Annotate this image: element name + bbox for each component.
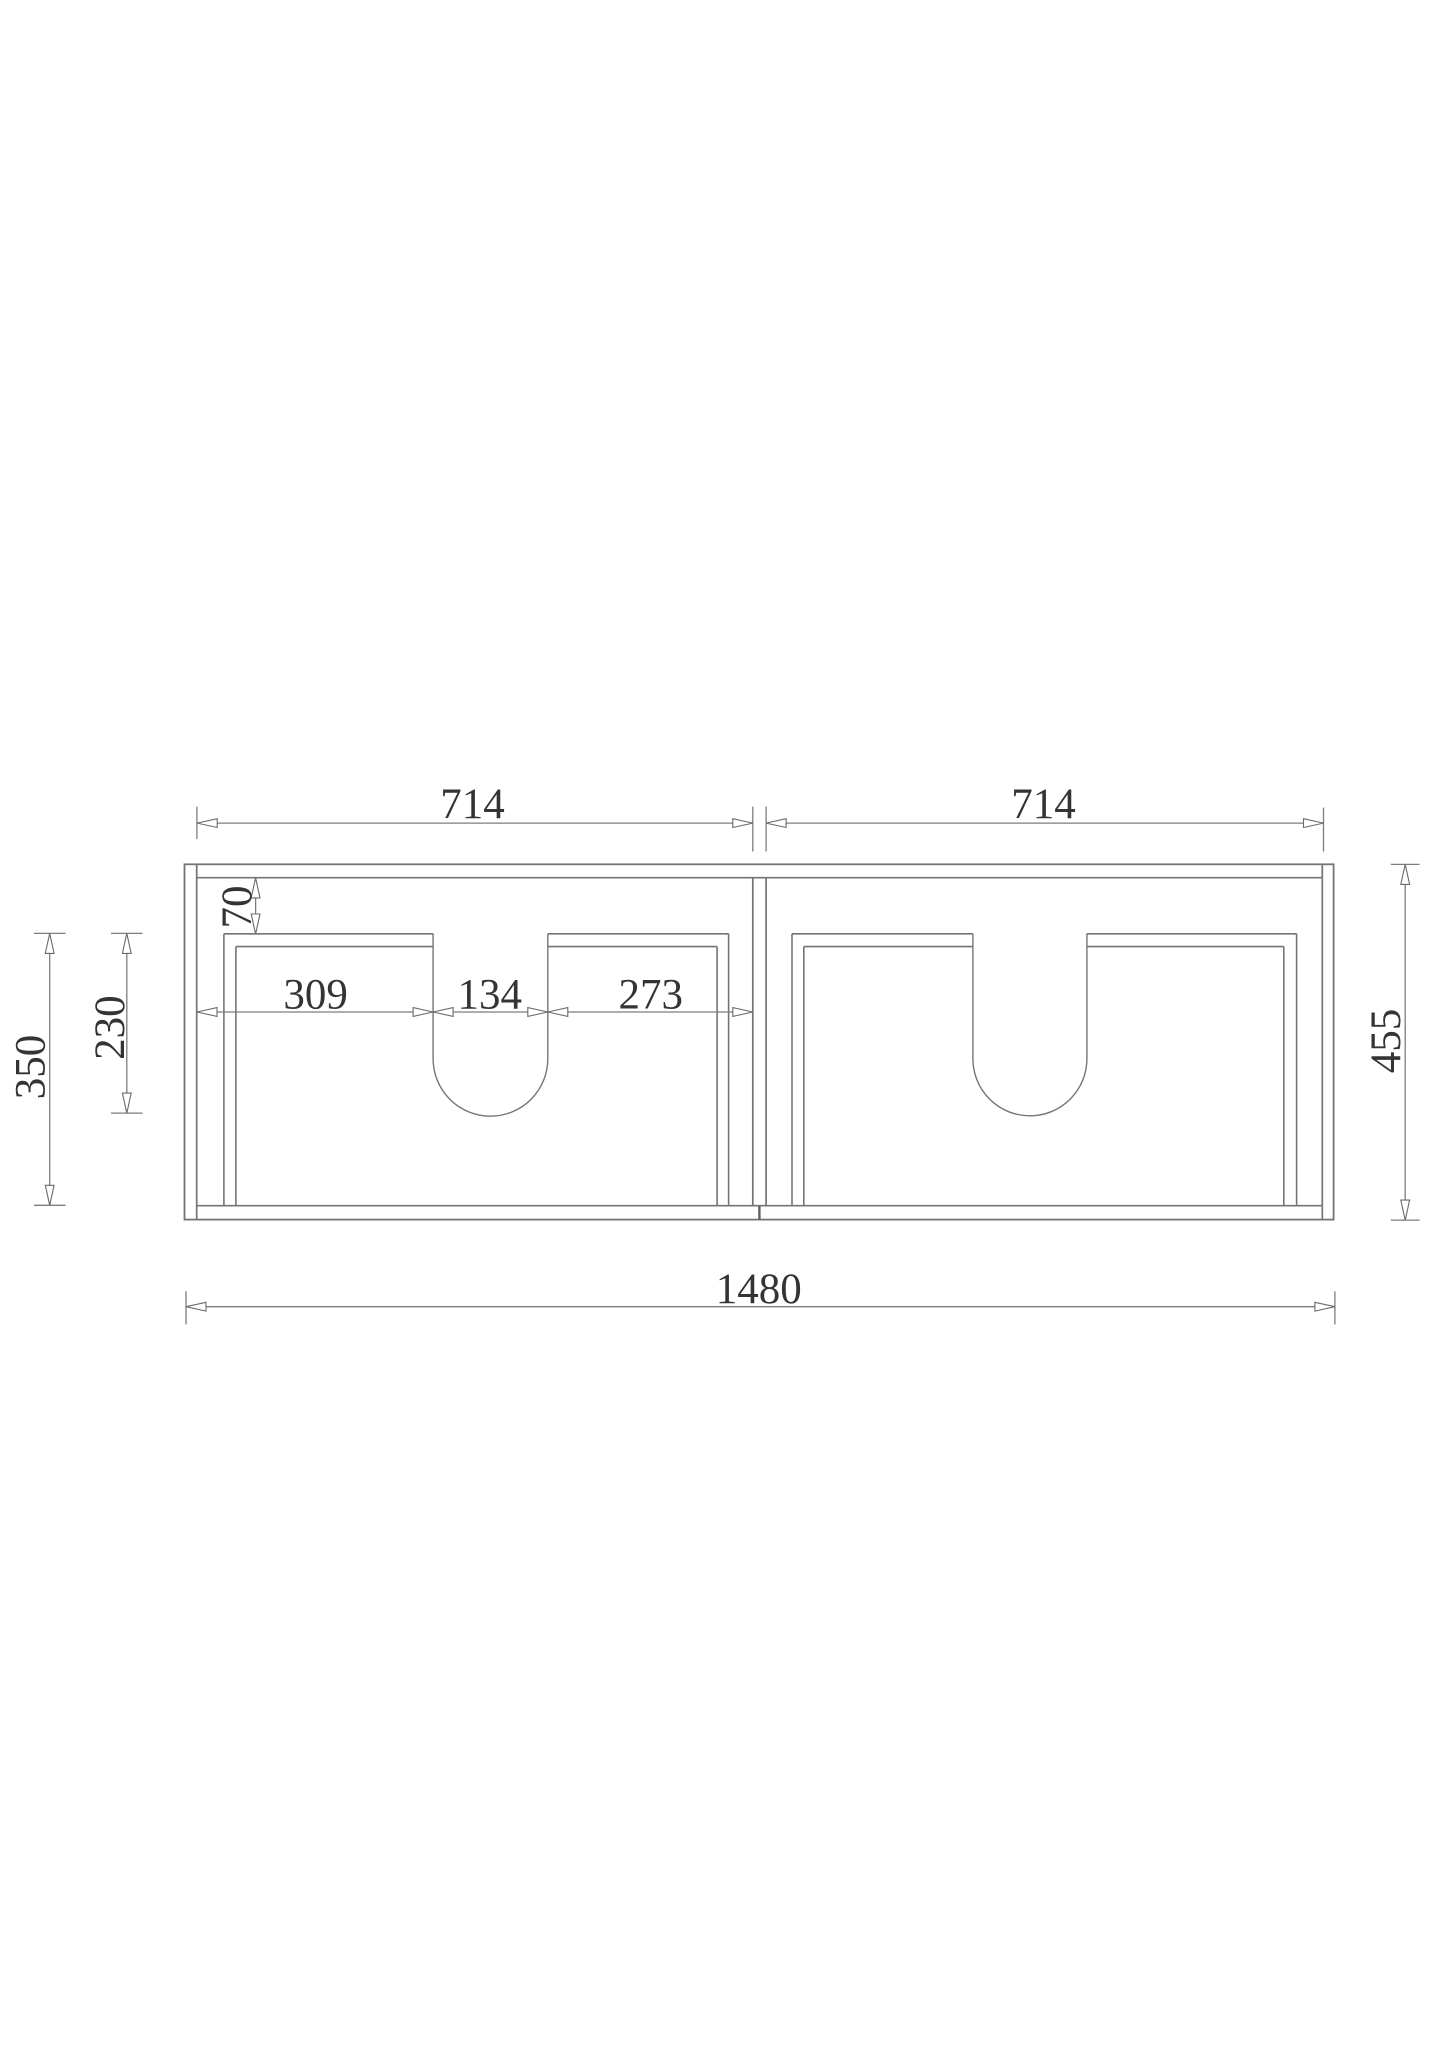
svg-text:455: 455 xyxy=(1363,1009,1410,1074)
svg-text:714: 714 xyxy=(1011,781,1076,828)
svg-text:230: 230 xyxy=(87,995,134,1060)
svg-text:70: 70 xyxy=(214,886,261,929)
svg-text:350: 350 xyxy=(8,1035,55,1100)
svg-text:134: 134 xyxy=(458,971,523,1018)
svg-text:273: 273 xyxy=(618,971,683,1018)
svg-text:309: 309 xyxy=(283,971,348,1018)
svg-text:714: 714 xyxy=(440,781,505,828)
svg-text:1480: 1480 xyxy=(716,1266,802,1313)
